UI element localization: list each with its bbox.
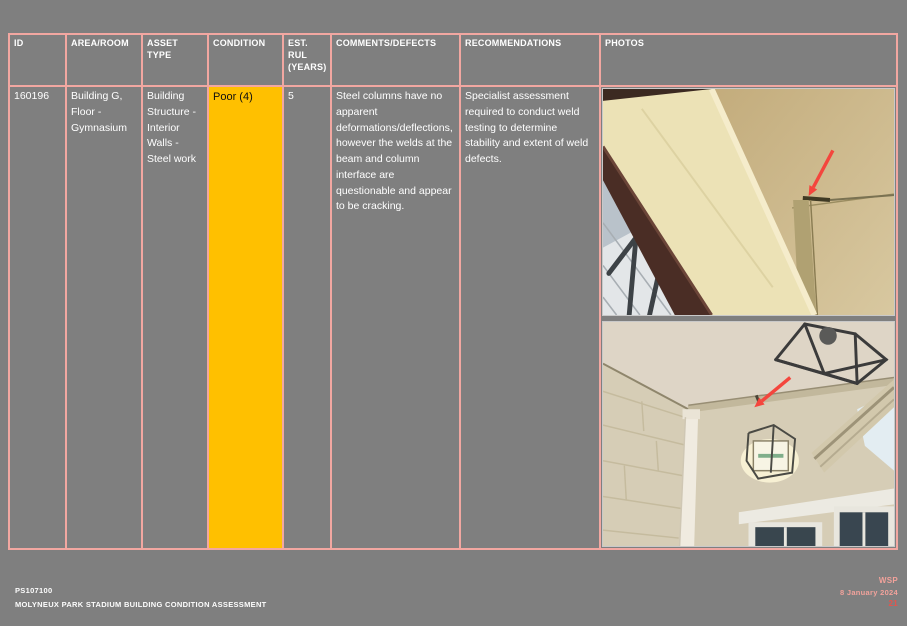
id-cell: 160196 xyxy=(10,87,65,548)
recommendations-cell: Specialist assessment required to conduc… xyxy=(461,87,599,548)
footer-left: PS107100 MOLYNEUX PARK STADIUM BUILDING … xyxy=(15,584,267,611)
header-est-rul: EST. RUL (YEARS) xyxy=(284,35,330,85)
photo-1-illustration xyxy=(603,89,894,315)
header-asset-type: ASSET TYPE xyxy=(143,35,207,85)
page-number: 21 xyxy=(840,598,898,610)
header-comments-defects: COMMENTS/DEFECTS xyxy=(332,35,459,85)
condition-cell: Poor (4) xyxy=(209,87,282,548)
header-id: ID xyxy=(10,35,65,85)
est-rul-cell: 5 xyxy=(284,87,330,548)
project-number: PS107100 xyxy=(15,584,267,598)
gymnasium-ceiling-wall-joint-photo xyxy=(602,321,895,547)
header-recommendations: RECOMMENDATIONS xyxy=(461,35,599,85)
area-room-cell: Building G, Floor - Gymnasium xyxy=(67,87,141,548)
wsp-logo: WSP xyxy=(840,575,898,587)
photos-cell xyxy=(601,87,896,548)
footer-right: WSP 8 January 2024 21 xyxy=(840,575,898,610)
condition-assessment-table: ID AREA/ROOM ASSET TYPE CONDITION EST. R… xyxy=(8,33,898,550)
header-area-room: AREA/ROOM xyxy=(67,35,141,85)
asset-type-cell: Building Structure - Interior Walls - St… xyxy=(143,87,207,548)
header-condition: CONDITION xyxy=(209,35,282,85)
report-page: ID AREA/ROOM ASSET TYPE CONDITION EST. R… xyxy=(0,0,907,626)
footer-date: 8 January 2024 xyxy=(840,587,898,598)
photo-2-illustration xyxy=(603,322,894,546)
comments-defects-cell: Steel columns have no apparent deformati… xyxy=(332,87,459,548)
gymnasium-beam-column-weld-photo xyxy=(602,88,895,316)
report-title: MOLYNEUX PARK STADIUM BUILDING CONDITION… xyxy=(15,598,267,612)
header-photos: PHOTOS xyxy=(601,35,896,85)
